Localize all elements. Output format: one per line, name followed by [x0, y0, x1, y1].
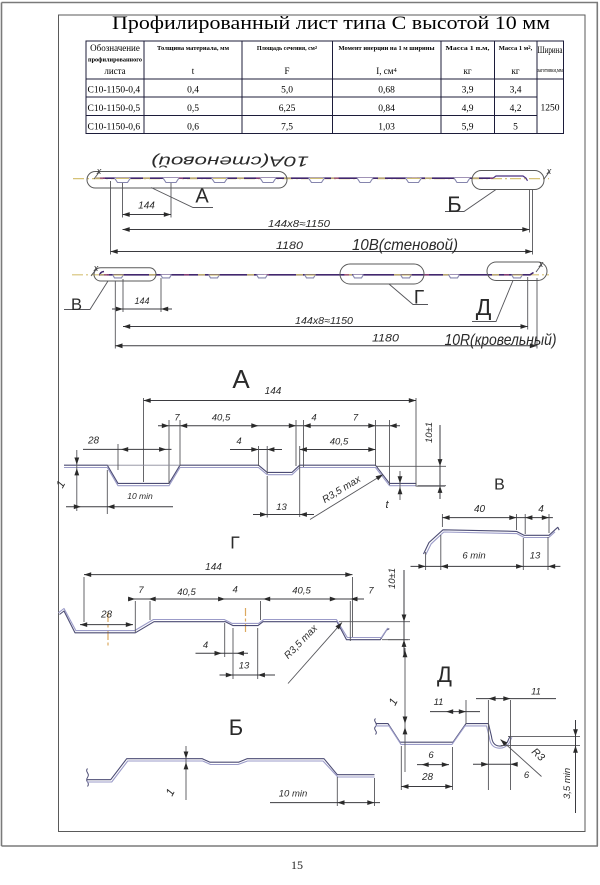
svg-text:40,5: 40,5	[330, 437, 349, 448]
svg-text:4,9: 4,9	[462, 104, 474, 114]
svg-text:С10-1150-0,5: С10-1150-0,5	[88, 104, 141, 114]
svg-text:В: В	[494, 477, 505, 494]
svg-text:Г: Г	[414, 288, 424, 309]
svg-text:С10-1150-0,4: С10-1150-0,4	[88, 86, 141, 96]
svg-text:28: 28	[100, 610, 113, 621]
svg-text:F: F	[284, 66, 289, 76]
svg-text:13: 13	[276, 502, 287, 513]
svg-text:10±1: 10±1	[387, 568, 398, 589]
svg-text:А: А	[195, 186, 209, 208]
svg-text:3,9: 3,9	[462, 86, 474, 96]
svg-text:40: 40	[474, 504, 486, 515]
svg-text:4: 4	[236, 436, 241, 447]
svg-text:1250: 1250	[541, 104, 560, 114]
svg-text:А: А	[232, 364, 250, 394]
svg-text:144: 144	[138, 201, 155, 212]
svg-text:х: х	[538, 259, 544, 269]
svg-text:листа: листа	[104, 66, 125, 76]
svg-text:144х8≈1150: 144х8≈1150	[268, 219, 330, 230]
svg-text:10В(стеновой): 10В(стеновой)	[352, 237, 458, 254]
svg-text:4,2: 4,2	[510, 104, 522, 114]
svg-text:4: 4	[233, 585, 238, 596]
svg-text:10±1: 10±1	[424, 422, 435, 443]
svg-text:Толщина материала, мм: Толщина материала, мм	[157, 46, 229, 52]
svg-text:0,5: 0,5	[187, 104, 199, 114]
svg-text:0,4: 0,4	[187, 86, 199, 96]
svg-text:Обозначение: Обозначение	[90, 43, 140, 53]
svg-text:6: 6	[428, 750, 434, 761]
svg-text:заготовки,мм: заготовки,мм	[537, 68, 563, 74]
svg-text:кг: кг	[463, 66, 471, 76]
svg-text:0,68: 0,68	[378, 86, 395, 96]
svg-text:40,5: 40,5	[177, 587, 196, 598]
svg-text:Момент инерции на 1 м ширины: Момент инерции на 1 м ширины	[339, 46, 435, 52]
svg-text:144: 144	[205, 562, 222, 573]
svg-text:13: 13	[239, 661, 250, 672]
svg-text:Д: Д	[476, 294, 492, 320]
svg-text:Площадь сечения, см2: Площадь сечения, см2	[257, 45, 318, 53]
svg-text:1,03: 1,03	[378, 123, 395, 133]
svg-text:7: 7	[368, 586, 374, 597]
svg-text:11: 11	[531, 687, 541, 698]
svg-text:3,4: 3,4	[510, 86, 522, 96]
svg-text:10 min: 10 min	[279, 789, 308, 800]
svg-text:144: 144	[265, 386, 282, 397]
svg-text:15: 15	[291, 858, 303, 872]
svg-text:4: 4	[538, 504, 544, 515]
svg-text:5: 5	[513, 123, 518, 133]
svg-text:4: 4	[203, 640, 208, 651]
svg-text:0,6: 0,6	[187, 123, 199, 133]
svg-text:х: х	[96, 166, 102, 176]
svg-text:6 min: 6 min	[462, 551, 485, 562]
svg-text:28: 28	[421, 772, 434, 783]
svg-text:13: 13	[530, 551, 541, 562]
svg-text:11: 11	[434, 697, 444, 708]
svg-text:28: 28	[87, 436, 100, 447]
svg-text:0,84: 0,84	[378, 104, 395, 114]
svg-text:кг: кг	[511, 66, 519, 76]
svg-text:6: 6	[524, 770, 530, 781]
svg-text:1180: 1180	[372, 333, 400, 345]
svg-text:Профилированный лист типа С вы: Профилированный лист типа С высотой 10 м…	[112, 13, 550, 34]
svg-text:7,5: 7,5	[281, 123, 293, 133]
svg-text:5,9: 5,9	[462, 123, 474, 133]
svg-text:В: В	[71, 296, 82, 314]
svg-text:Б: Б	[229, 715, 243, 740]
svg-text:Г: Г	[230, 533, 240, 553]
svg-text:6,25: 6,25	[279, 104, 296, 114]
svg-text:Ширина: Ширина	[538, 45, 563, 55]
svg-text:7: 7	[174, 413, 180, 424]
svg-text:Масса 1 м2,: Масса 1 м2,	[499, 45, 533, 52]
svg-text:Б: Б	[447, 192, 461, 217]
svg-text:10R(кровельный): 10R(кровельный)	[445, 332, 557, 349]
svg-text:144х8≈1150: 144х8≈1150	[295, 316, 353, 327]
svg-text:10А(стеновой): 10А(стеновой)	[151, 153, 309, 170]
svg-text:х: х	[546, 166, 552, 176]
svg-text:10 min: 10 min	[127, 491, 153, 501]
svg-text:7: 7	[353, 413, 359, 424]
svg-text:5,0: 5,0	[281, 86, 293, 96]
svg-text:40,5: 40,5	[292, 586, 311, 597]
svg-text:7: 7	[138, 585, 144, 596]
svg-text:х: х	[93, 263, 99, 273]
svg-text:1180: 1180	[276, 240, 304, 252]
svg-text:Масса 1 п.м,: Масса 1 п.м,	[446, 45, 490, 52]
svg-text:144: 144	[134, 296, 149, 306]
svg-text:40,5: 40,5	[212, 413, 231, 424]
svg-text:3,5 min: 3,5 min	[562, 768, 573, 799]
svg-text:4: 4	[311, 413, 316, 424]
svg-text:Д: Д	[437, 662, 452, 687]
svg-text:С10-1150-0,6: С10-1150-0,6	[88, 123, 141, 133]
svg-text:профилированного: профилированного	[88, 57, 142, 64]
